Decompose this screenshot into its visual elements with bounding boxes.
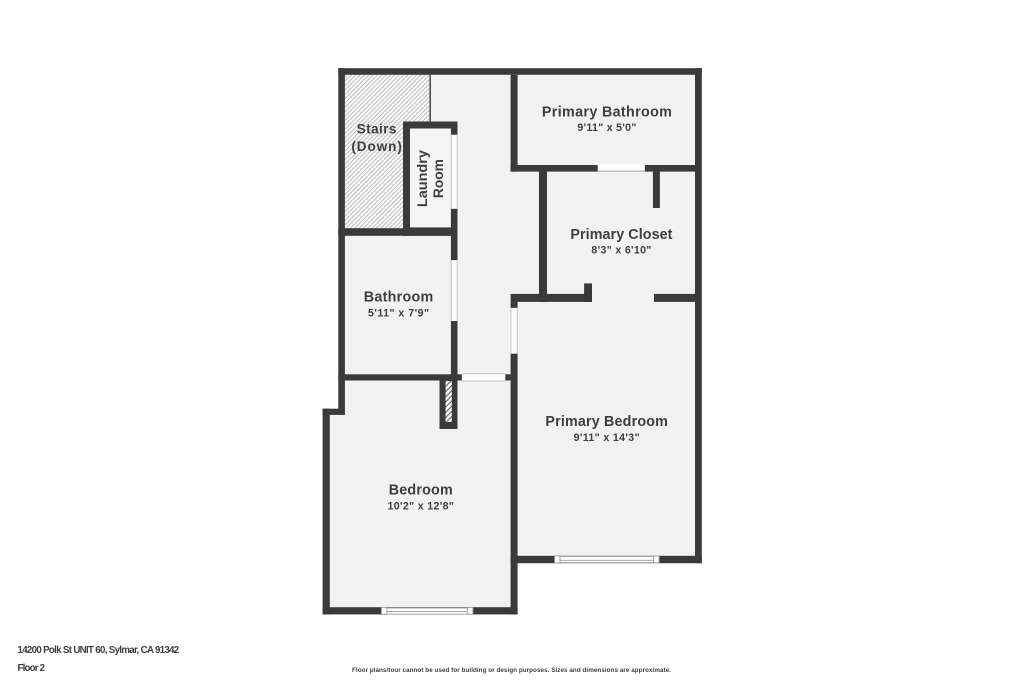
svg-text:9'11" x 14'3": 9'11" x 14'3" [574,432,640,444]
svg-text:10'2" x 12'8": 10'2" x 12'8" [387,501,454,513]
svg-text:8'3" x 6'10": 8'3" x 6'10" [591,245,651,257]
svg-text:Floor 2: Floor 2 [18,663,46,674]
svg-text:Stairs: Stairs [357,122,397,137]
svg-text:Bathroom: Bathroom [364,290,434,306]
svg-text:(Down): (Down) [351,139,402,154]
svg-text:Primary Bathroom: Primary Bathroom [542,105,672,121]
svg-text:Primary Bedroom: Primary Bedroom [545,414,668,430]
svg-text:Floor plans/tour cannot be use: Floor plans/tour cannot be used for buil… [352,667,671,674]
svg-text:Bedroom: Bedroom [389,482,453,498]
svg-text:5'11" x 7'9": 5'11" x 7'9" [368,307,429,319]
svg-text:9'11" x 5'0": 9'11" x 5'0" [577,122,636,134]
svg-text:Primary Closet: Primary Closet [570,227,672,243]
svg-text:14200 Polk St UNIT 60, Sylmar,: 14200 Polk St UNIT 60, Sylmar, CA 91342 [18,645,180,656]
